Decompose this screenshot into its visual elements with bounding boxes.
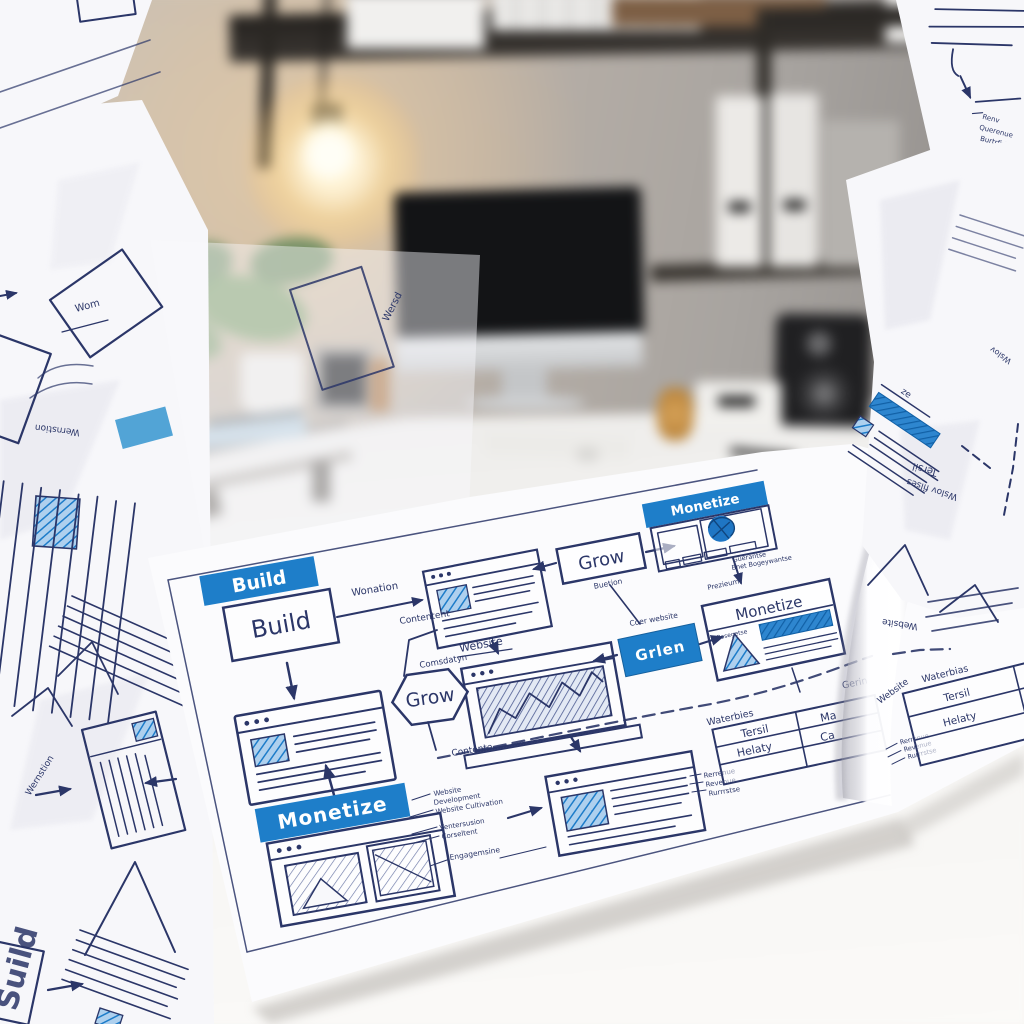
right-scrap-papers: ze Tersil Wslov filses Wslov [840,140,1024,622]
image-placeholder [251,734,289,766]
image-placeholder [561,790,608,831]
sketch-layer: Wersd Wom Wernstion [0,0,1024,1024]
workspace-photo: Wersd Wom Wernstion [0,0,1024,1024]
